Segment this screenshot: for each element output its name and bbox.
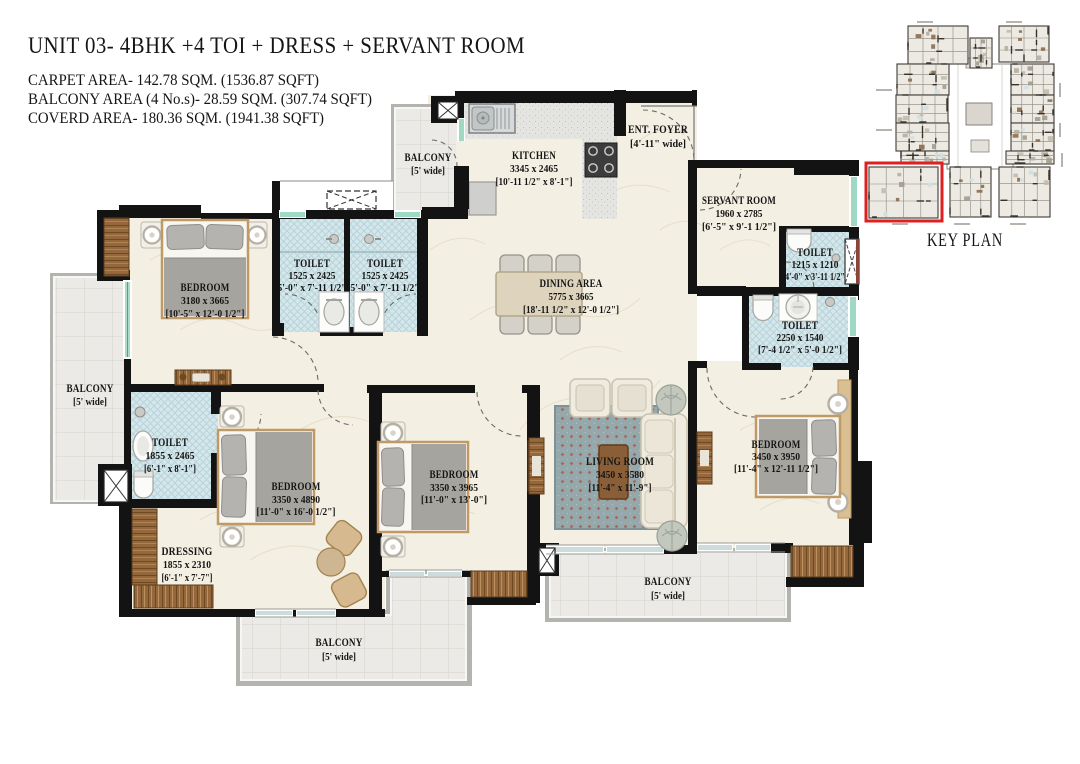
svg-text:BALCONY: BALCONY (405, 152, 452, 164)
svg-text:COVERD AREA- 180.36 SQM. (1941: COVERD AREA- 180.36 SQM. (1941.38 SQFT) (28, 110, 324, 127)
svg-text:LIVING ROOM: LIVING ROOM (586, 456, 654, 468)
svg-text:[10'-5" x 12'-0 1/2"]: [10'-5" x 12'-0 1/2"] (166, 309, 245, 320)
svg-text:2250 x 1540: 2250 x 1540 (777, 333, 824, 344)
svg-text:[5' wide]: [5' wide] (651, 591, 685, 602)
svg-text:3350 x 4890: 3350 x 4890 (272, 495, 320, 506)
svg-text:TOILET: TOILET (367, 258, 403, 270)
svg-text:3180 x 3665: 3180 x 3665 (181, 296, 229, 307)
svg-text:TOILET: TOILET (797, 247, 833, 259)
svg-text:BALCONY AREA (4 No.s)- 28.59 S: BALCONY AREA (4 No.s)- 28.59 SQM. (307.7… (28, 91, 372, 108)
svg-text:ENT. FOYER: ENT. FOYER (628, 124, 688, 136)
svg-text:BALCONY: BALCONY (645, 576, 692, 588)
svg-text:3450 x 3580: 3450 x 3580 (596, 470, 644, 481)
svg-text:[11'-4" x 11'-9"]: [11'-4" x 11'-9"] (589, 483, 652, 494)
svg-text:[5' wide]: [5' wide] (322, 652, 356, 663)
svg-text:[11'-0" x 16'-0 1/2"]: [11'-0" x 16'-0 1/2"] (257, 507, 336, 518)
svg-text:[6'-1" x 8'-1"]: [6'-1" x 8'-1"] (144, 464, 196, 475)
svg-text:[18'-11 1/2" x 12'-0 1/2"]: [18'-11 1/2" x 12'-0 1/2"] (523, 305, 619, 316)
svg-text:BEDROOM: BEDROOM (272, 481, 321, 493)
svg-text:BALCONY: BALCONY (316, 637, 363, 649)
svg-text:1855 x 2465: 1855 x 2465 (146, 451, 195, 462)
svg-text:BALCONY: BALCONY (67, 383, 114, 395)
svg-text:5'-0" x 7'-11 1/2": 5'-0" x 7'-11 1/2" (278, 283, 347, 294)
svg-text:1525 x 2425: 1525 x 2425 (289, 271, 336, 282)
svg-text:KITCHEN: KITCHEN (512, 150, 556, 162)
svg-text:5775 x 3665: 5775 x 3665 (549, 292, 594, 303)
svg-text:BEDROOM: BEDROOM (430, 469, 479, 481)
svg-text:KEY PLAN: KEY PLAN (927, 230, 1003, 251)
svg-text:[10'-11 1/2" x 8'-1"]: [10'-11 1/2" x 8'-1"] (496, 177, 573, 188)
svg-text:DRESSING: DRESSING (162, 546, 213, 558)
svg-text:1525 x 2425: 1525 x 2425 (362, 271, 409, 282)
svg-text:[7'-4 1/2" x 5'-0 1/2"]: [7'-4 1/2" x 5'-0 1/2"] (758, 345, 842, 356)
svg-text:3350 x 3965: 3350 x 3965 (430, 483, 478, 494)
svg-text:1215 x 1210: 1215 x 1210 (792, 260, 839, 271)
svg-text:3345 x 2465: 3345 x 2465 (510, 164, 558, 175)
svg-text:5'-0" x 7'-11 1/2": 5'-0" x 7'-11 1/2" (351, 283, 420, 294)
svg-text:[11'-4" x 12'-11 1/2"]: [11'-4" x 12'-11 1/2"] (734, 464, 818, 475)
svg-text:BEDROOM: BEDROOM (181, 282, 230, 294)
svg-text:[5' wide]: [5' wide] (411, 166, 445, 177)
svg-text:UNIT 03- 4BHK +4 TOI + DRESS +: UNIT 03- 4BHK +4 TOI + DRESS + SERVANT R… (28, 33, 525, 59)
svg-text:3450 x 3950: 3450 x 3950 (752, 452, 800, 463)
svg-text:CARPET AREA- 142.78 SQM. (1536: CARPET AREA- 142.78 SQM. (1536.87 SQFT) (28, 72, 319, 89)
svg-text:[4'-11" wide]: [4'-11" wide] (630, 139, 686, 150)
svg-text:TOILET: TOILET (294, 258, 330, 270)
svg-text:[11'-0" x 13'-0"]: [11'-0" x 13'-0"] (421, 495, 487, 506)
svg-text:TOILET: TOILET (152, 437, 188, 449)
svg-text:BEDROOM: BEDROOM (752, 439, 801, 451)
svg-text:[6'-5" x 9'-1 1/2"]: [6'-5" x 9'-1 1/2"] (702, 222, 776, 233)
svg-text:1960 x 2785: 1960 x 2785 (716, 209, 763, 220)
svg-text:4'-0" x 3'-11 1/2": 4'-0" x 3'-11 1/2" (785, 272, 845, 283)
svg-text:DINING AREA: DINING AREA (540, 278, 603, 290)
svg-text:TOILET: TOILET (782, 320, 818, 332)
svg-text:SERVANT ROOM: SERVANT ROOM (702, 195, 776, 207)
svg-text:[5' wide]: [5' wide] (73, 397, 107, 408)
svg-text:[6'-1" x 7'-7"]: [6'-1" x 7'-7"] (162, 573, 213, 584)
svg-text:1855 x 2310: 1855 x 2310 (163, 560, 211, 571)
